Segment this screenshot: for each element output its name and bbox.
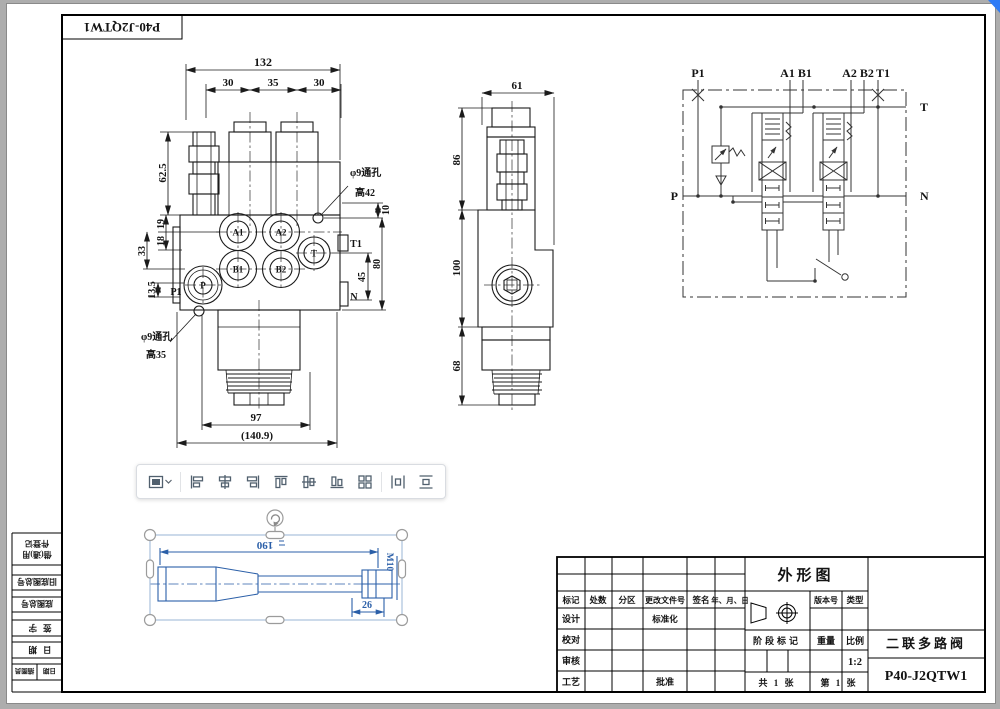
dim-30a: 30: [223, 77, 235, 89]
chevron-down-icon: [164, 477, 173, 486]
dim-80: 80: [372, 259, 383, 269]
schematic-label-a1b1: A1 B1: [780, 66, 812, 80]
resize-handle-nw[interactable]: [145, 530, 156, 541]
align-horizontal-center-icon: [217, 474, 233, 490]
margin-row6-left: 描图员: [14, 667, 34, 676]
dim-30b: 30: [314, 77, 326, 89]
dim-35: 35: [268, 77, 280, 89]
label-p1: P1: [170, 287, 181, 298]
toolbar-separator: [180, 472, 181, 492]
margin-row3: 底图总号: [21, 599, 54, 609]
dim-13-5: 13.5: [147, 281, 158, 299]
tb-header-sign: 签名: [691, 595, 709, 605]
tb-header-zone: 分区: [618, 595, 636, 605]
note-hole-top-line1: φ9通孔: [350, 166, 381, 179]
align-bottom-button[interactable]: [325, 469, 349, 495]
port-a2: A2: [276, 228, 287, 238]
dim-140-9: (140.9): [241, 430, 273, 442]
schematic-label-p1: P1: [691, 66, 704, 80]
align-right-icon: [245, 474, 261, 490]
tb-header-mark: 标记: [561, 595, 580, 605]
port-a1: A1: [233, 228, 244, 238]
port-p: P: [200, 281, 206, 291]
sel-dim-thread: M10: [384, 553, 394, 572]
sel-dim-26: 26: [362, 600, 372, 611]
schematic-label-a2b2: A2 B2: [842, 66, 874, 80]
floating-toolbar: [136, 464, 446, 499]
snap-to-grid-button[interactable]: [353, 469, 377, 495]
tb-scale-label: 比例: [846, 635, 864, 646]
dim-33: 33: [137, 246, 148, 256]
port-b2: B2: [276, 265, 287, 275]
tb-approve: 批准: [656, 676, 674, 687]
dim-19: 19: [156, 219, 167, 229]
snap-to-grid-icon: [357, 474, 373, 490]
align-top-icon: [273, 474, 289, 490]
resize-handle-e[interactable]: [399, 560, 406, 578]
resize-handle-sw[interactable]: [145, 615, 156, 626]
tb-stage-label: 阶段标记: [753, 635, 801, 646]
tb-row-design: 设计: [562, 613, 580, 624]
label-t1: T1: [350, 239, 362, 250]
dim-100: 100: [451, 259, 463, 276]
tb-row-review: 审核: [562, 655, 580, 666]
align-vertical-center-button[interactable]: [297, 469, 321, 495]
margin-row2: 旧底图总号: [17, 577, 57, 587]
align-right-button[interactable]: [241, 469, 265, 495]
margin-row1-line2: 件登记: [25, 539, 49, 549]
align-horizontal-center-button[interactable]: [213, 469, 237, 495]
note-hole-top-line2: 高42: [355, 186, 375, 199]
distribute-horizontal-icon: [390, 474, 406, 490]
page: P40-J2QTW1 A1 A2 B1: [0, 0, 1000, 709]
corner-part-number-text: P40-J2QTW1: [84, 20, 161, 35]
align-top-button[interactable]: [269, 469, 293, 495]
dim-61: 61: [512, 80, 523, 92]
align-left-icon: [189, 474, 205, 490]
tb-header-date: 年、月、日: [711, 595, 749, 605]
dim-10: 10: [381, 205, 392, 215]
tb-header-changefile: 更改文件号: [645, 595, 685, 605]
dim-68: 68: [451, 360, 463, 372]
resize-handle-s[interactable]: [266, 617, 284, 624]
margin-row5: 日期: [22, 645, 51, 655]
dim-45: 45: [357, 272, 368, 282]
dim-62-5: 62.5: [157, 163, 169, 183]
schematic-label-t: T: [920, 100, 928, 114]
tb-scale-value: 1:2: [848, 657, 862, 668]
resize-handle-ne[interactable]: [397, 530, 408, 541]
tb-type-label: 类型: [846, 595, 864, 605]
port-b1: B1: [233, 265, 244, 275]
toolbar-separator: [381, 472, 382, 492]
note-hole-bottom-line1: φ9通孔: [141, 330, 172, 343]
distribute-vertical-button[interactable]: [414, 469, 438, 495]
tb-drawing-name: 外形图: [776, 566, 834, 584]
margin-row4: 签字: [22, 623, 52, 633]
align-bottom-icon: [329, 474, 345, 490]
resize-handle-w[interactable]: [147, 560, 154, 578]
tb-sheet-no: 第 1 张: [820, 677, 857, 688]
sel-dim-length: 190: [256, 539, 273, 551]
margin-row1-line1: 借(通)用: [22, 550, 52, 560]
tb-weight-label: 重量: [817, 635, 835, 646]
tb-header-count: 处数: [588, 595, 607, 605]
tb-standardize: 标准化: [651, 614, 678, 624]
dim-18: 18: [156, 236, 167, 246]
tb-row-process: 工艺: [562, 676, 580, 687]
resize-handle-se[interactable]: [397, 615, 408, 626]
tb-product-name: 二联多路阀: [886, 636, 966, 651]
tb-sheet-total: 共 1 张: [758, 677, 795, 688]
tb-version-label: 版本号: [813, 595, 838, 605]
port-t: T: [311, 249, 317, 259]
tb-drawing-code: P40-J2QTW1: [885, 669, 967, 684]
layout-options-button[interactable]: [144, 469, 176, 495]
resize-handle-n[interactable]: [266, 532, 284, 539]
dim-97: 97: [251, 412, 263, 424]
distribute-vertical-icon: [418, 474, 434, 490]
schematic-label-t1: T1: [876, 66, 890, 80]
schematic-label-n: N: [920, 189, 929, 203]
margin-row6-right: 日期: [43, 667, 57, 676]
dim-132: 132: [254, 55, 272, 69]
distribute-horizontal-button[interactable]: [386, 469, 410, 495]
note-hole-bottom-line2: 高35: [146, 348, 166, 361]
align-left-button[interactable]: [185, 469, 209, 495]
dim-86: 86: [451, 154, 463, 166]
schematic-label-p: P: [671, 189, 678, 203]
layout-options-icon: [148, 474, 164, 490]
tb-row-check: 校对: [562, 634, 580, 645]
align-vertical-center-icon: [301, 474, 317, 490]
label-n: N: [350, 292, 358, 303]
drawing-sheet-svg: P40-J2QTW1 A1 A2 B1: [0, 0, 1000, 709]
